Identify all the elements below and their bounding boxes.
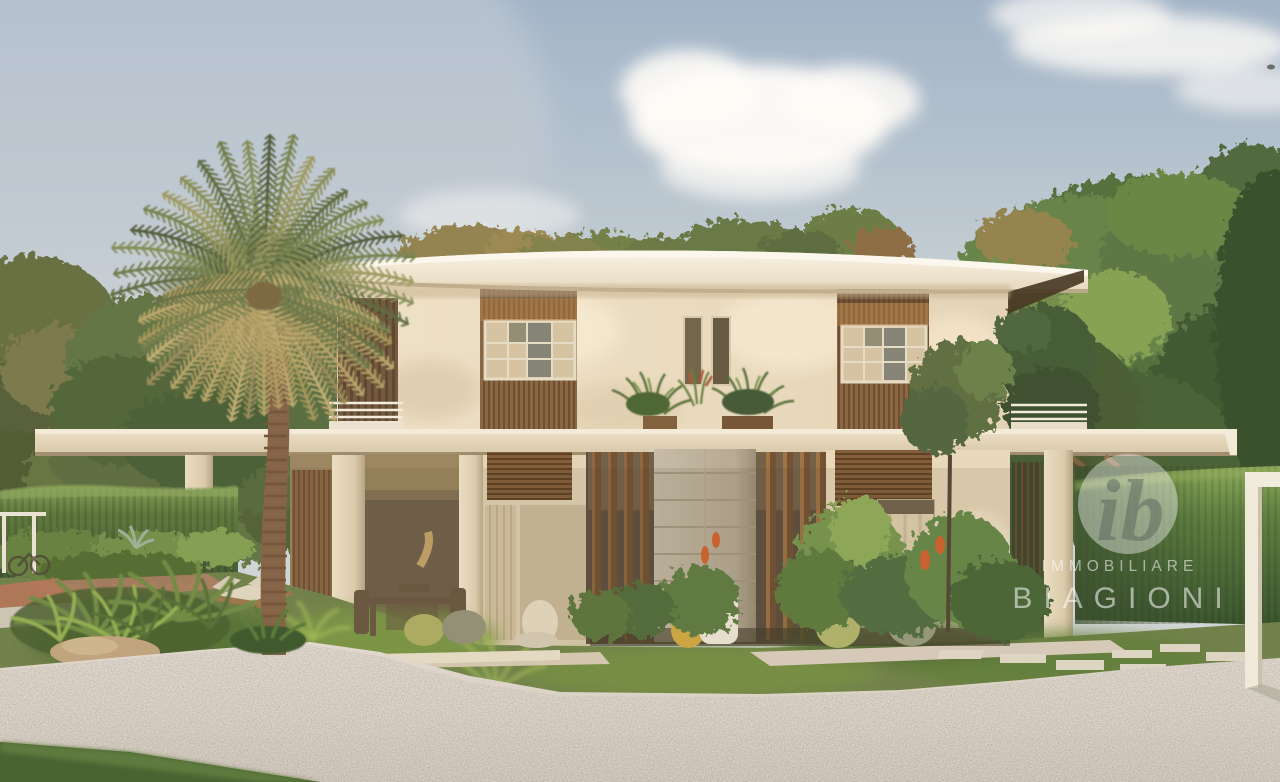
svg-text:ib: ib: [1096, 463, 1164, 560]
svg-text:BIAGIONI: BIAGIONI: [1012, 582, 1233, 615]
svg-text:IMMOBILIARE: IMMOBILIARE: [1042, 558, 1199, 575]
